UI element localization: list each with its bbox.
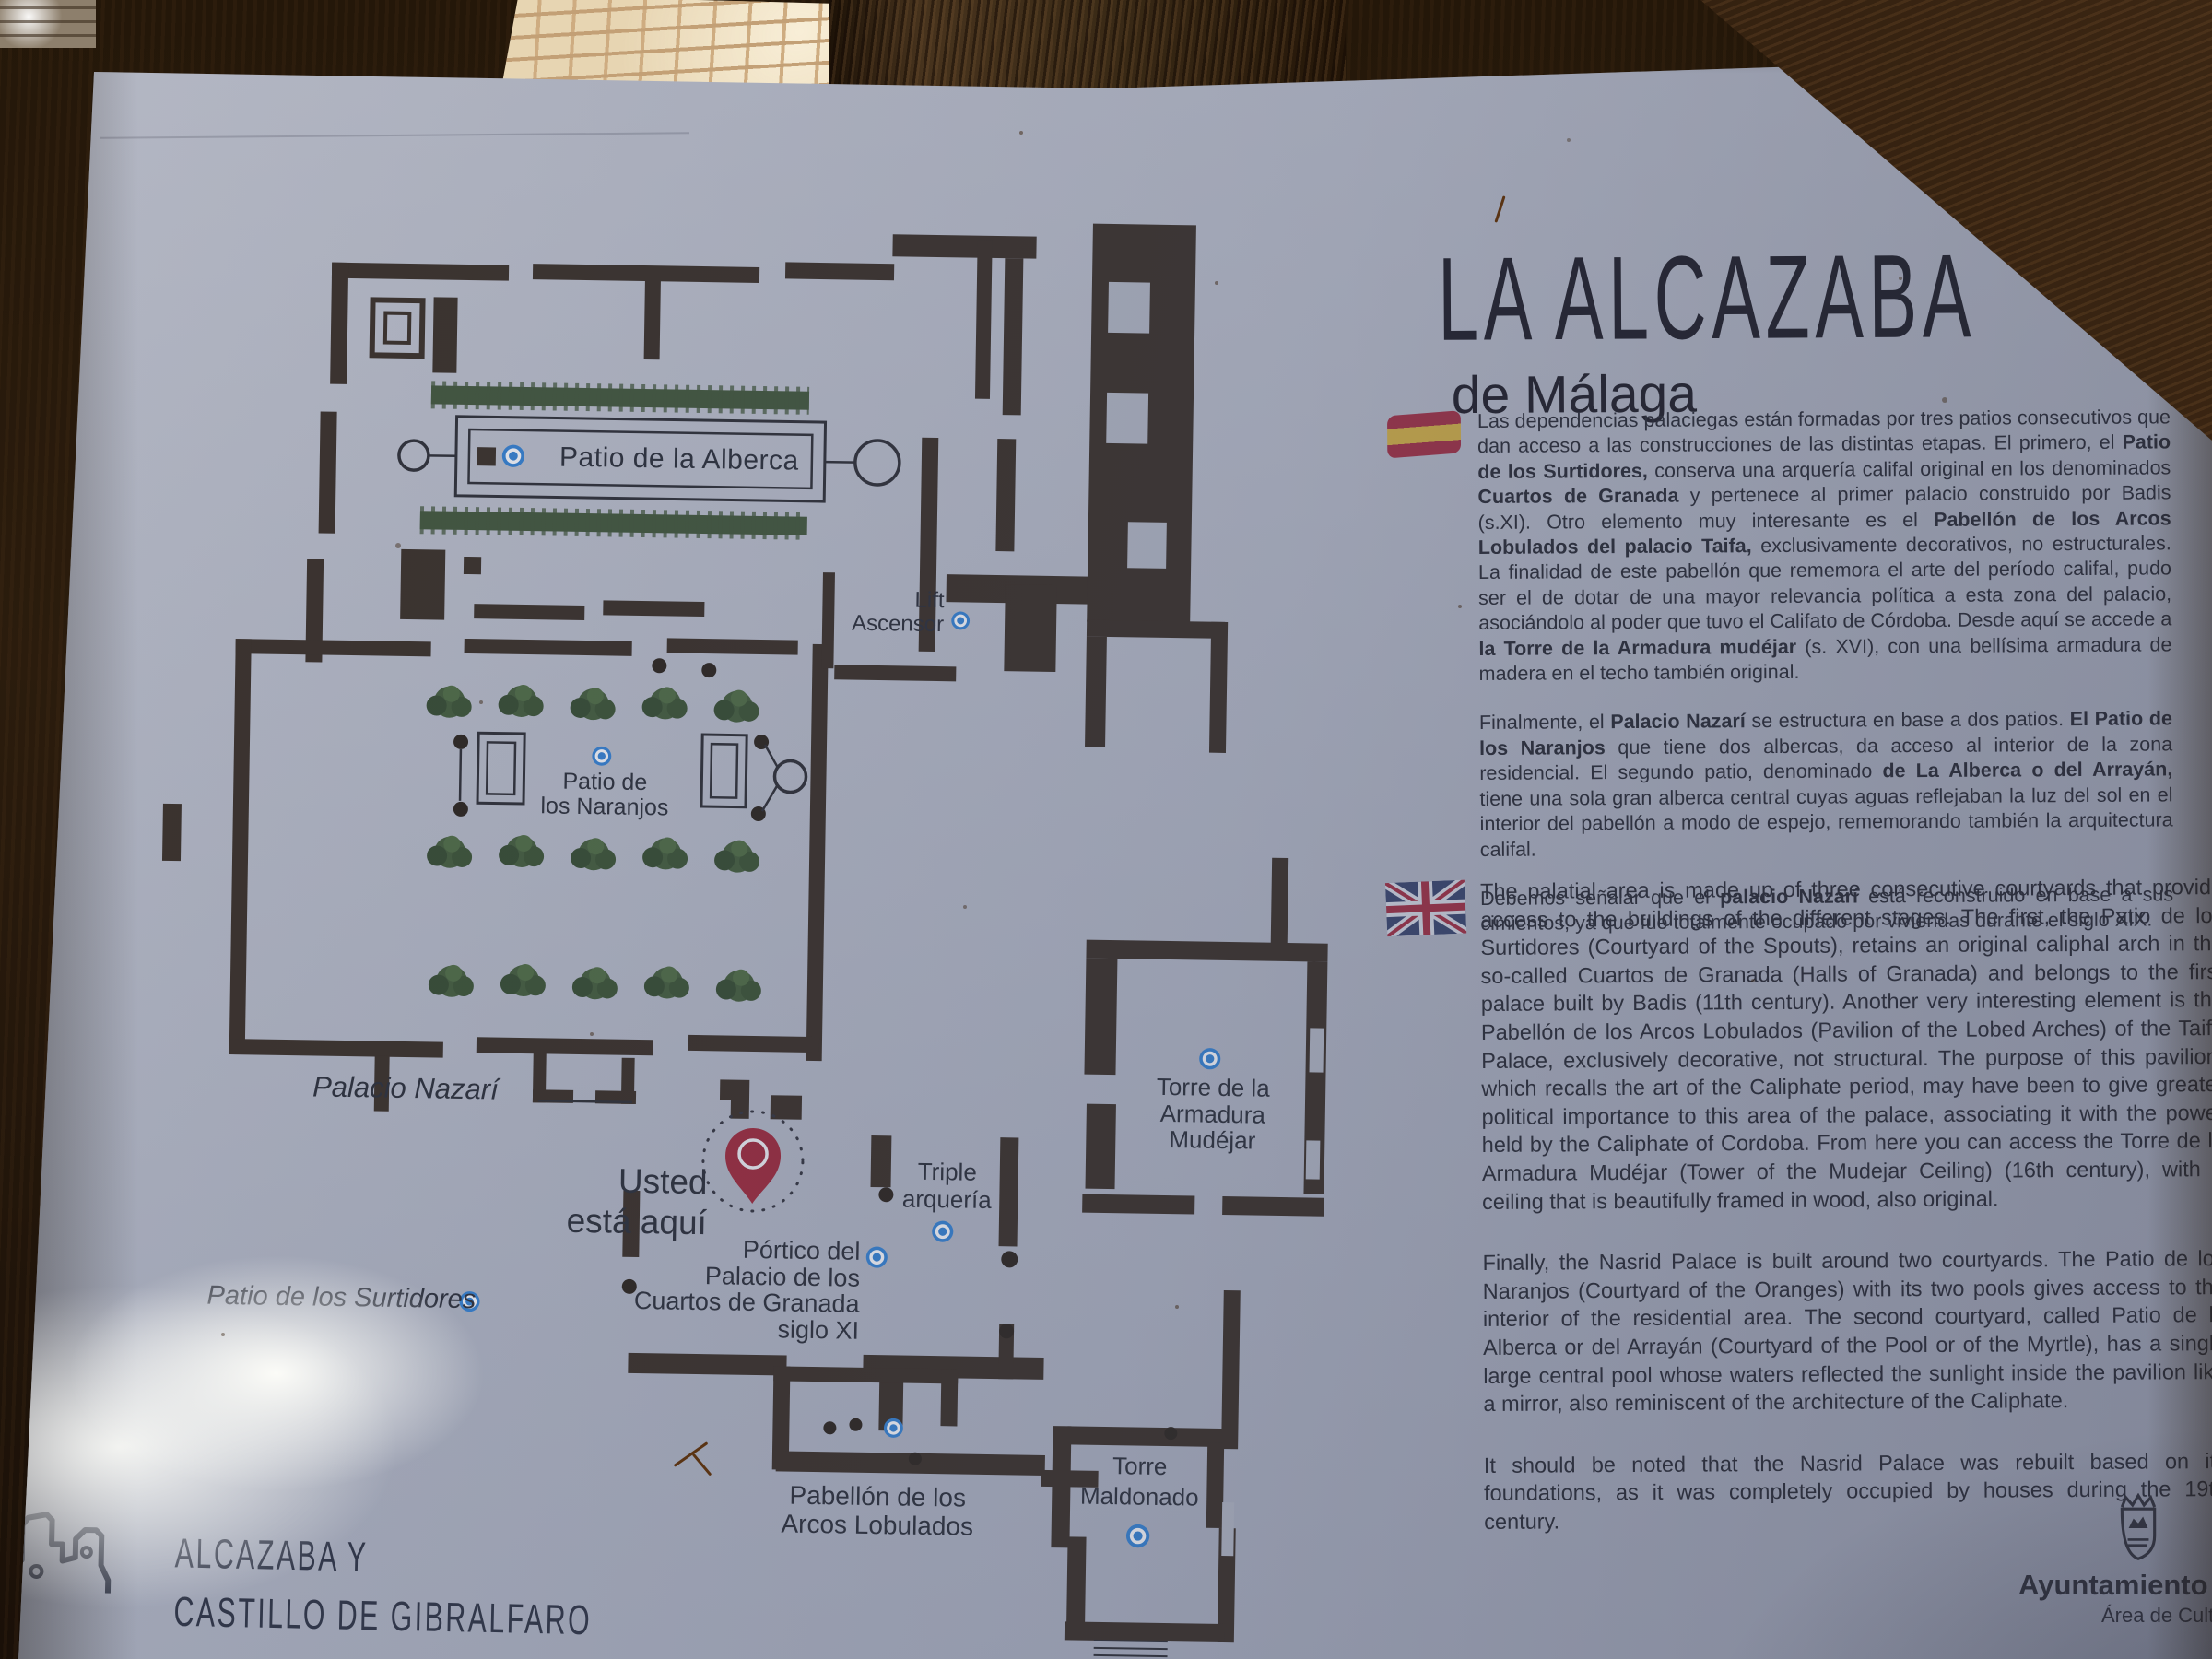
spanish-paragraph: Las dependencias palaciegas están formad… <box>1477 405 2172 687</box>
footer-right-line1: Ayuntamiento de M <box>2018 1569 2212 1602</box>
photo-of-information-sign: Patio de la Alberca Lift Ascensor Patio … <box>0 0 2212 1659</box>
spanish-paragraph: Finalmente, el Palacio Nazarí se estruct… <box>1479 707 2173 863</box>
spain-flag-icon <box>1387 410 1461 458</box>
page-title: LA ALCAZABA <box>1438 229 1977 369</box>
footer-right-line2: Área de Cultura <box>2101 1604 2212 1628</box>
information-sign-board: Patio de la Alberca Lift Ascensor Patio … <box>0 0 2212 1659</box>
footer-left-text: ALCAZABA Y CASTILLO DE GIBRALFARO <box>173 1530 594 1655</box>
brick-patch-left <box>0 0 96 48</box>
city-crest-icon <box>2114 1493 2162 1563</box>
english-paragraph: Finally, the Nasrid Palace is built arou… <box>1482 1244 2212 1418</box>
dust-specks <box>1019 131 1023 135</box>
info-column: LA ALCAZABA de Málaga Las dependencias p… <box>0 0 2212 1659</box>
english-paragraph: It should be noted that the Nasrid Palac… <box>1484 1447 2212 1536</box>
english-text: The palatial area is made up of three co… <box>1480 873 2212 1569</box>
english-paragraph: The palatial area is made up of three co… <box>1480 873 2212 1216</box>
uk-flag-icon <box>1385 880 1467 941</box>
